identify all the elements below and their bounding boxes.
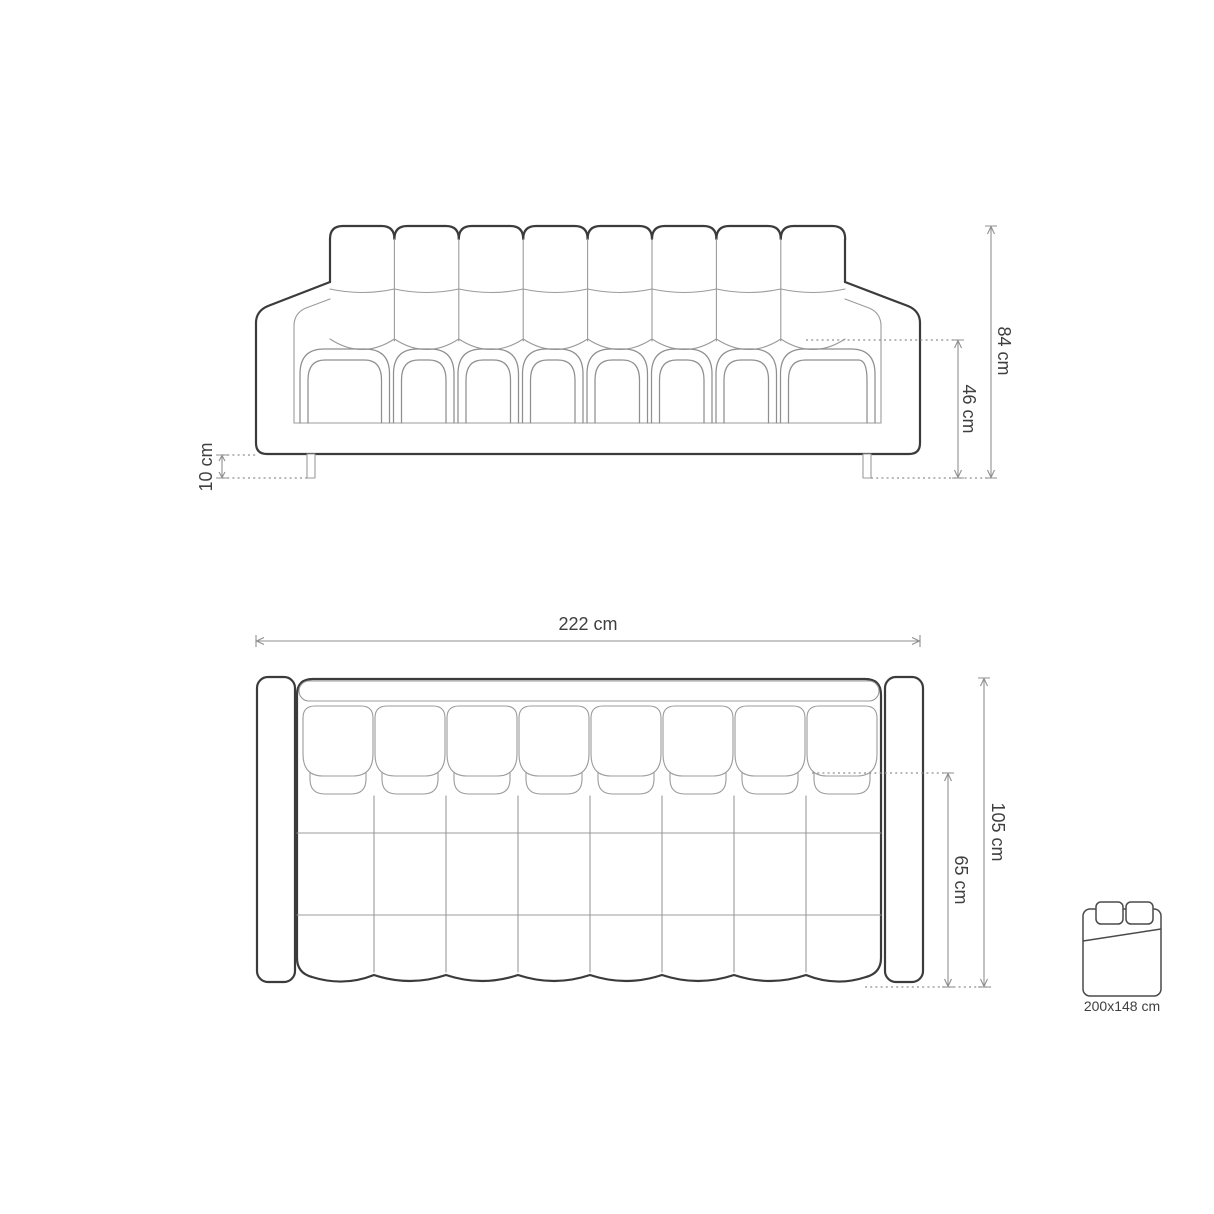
sofa-front-leg-left: [307, 454, 315, 478]
front-leg-height-dimension-line: [216, 455, 228, 478]
sofa-front-view: [256, 226, 920, 478]
sofa-dimension-diagram: 84 cm 46 cm 10 cm: [0, 0, 1214, 1214]
diagram-svg: 84 cm 46 cm 10 cm: [0, 0, 1214, 1214]
sofa-front-leg-right: [863, 454, 871, 478]
front-view-dimensions: 84 cm 46 cm 10 cm: [196, 226, 1014, 492]
bed-pillow-right: [1126, 902, 1153, 924]
sleeping-area-size-label: 200x148 cm: [1084, 998, 1160, 1014]
sofa-top-armrest-right: [885, 677, 923, 982]
top-depth-label: 105 cm: [988, 802, 1008, 861]
sofa-front-back-tufting: [330, 239, 845, 350]
sofa-front-seat-cushions: [300, 349, 875, 423]
top-width-label: 222 cm: [558, 614, 617, 634]
top-seat-depth-label: 65 cm: [951, 855, 971, 904]
bed-icon: [1083, 902, 1161, 996]
front-leg-height-label: 10 cm: [196, 442, 216, 491]
bed-pillow-left: [1096, 902, 1123, 924]
sofa-top-view: [257, 677, 923, 982]
sofa-top-armrest-left: [257, 677, 295, 982]
sofa-front-legs: [307, 454, 871, 478]
front-seat-height-label: 46 cm: [959, 384, 979, 433]
top-width-dimension-line: [256, 635, 920, 647]
front-height-label: 84 cm: [994, 326, 1014, 375]
sleeping-area: 200x148 cm: [1083, 902, 1161, 1014]
